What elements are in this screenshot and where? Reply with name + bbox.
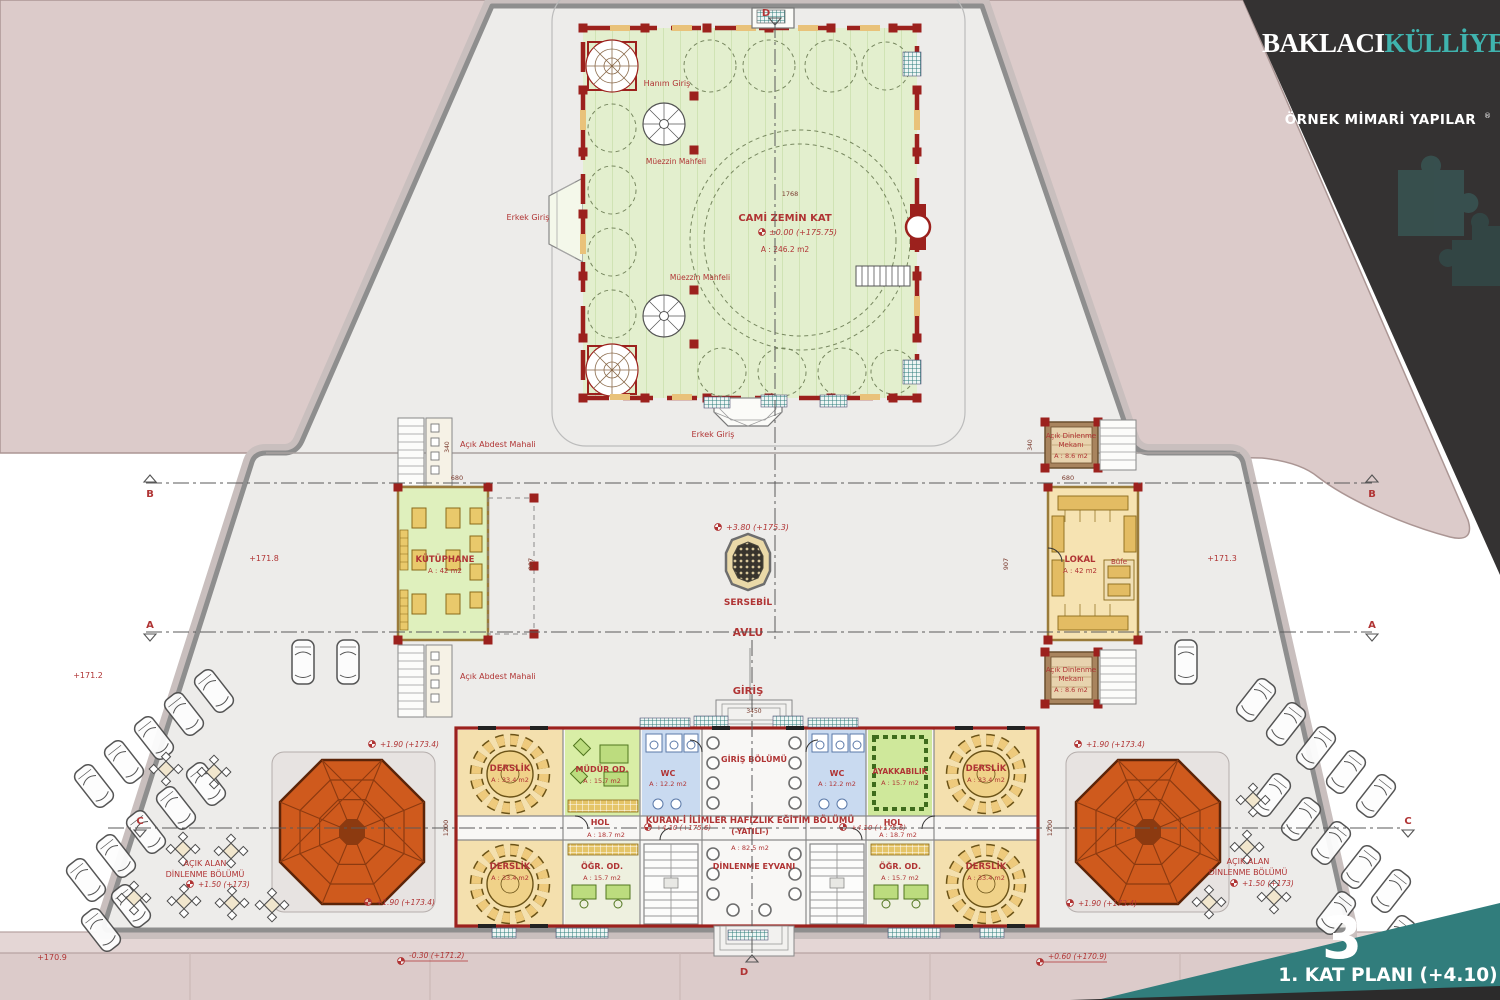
rest-upper-line2: Mekanı [1059, 441, 1084, 449]
muezzin-lower-label: Müezzin Mahfeli [670, 273, 730, 282]
section-marker-d-top: D [762, 8, 770, 19]
section-marker-c-right: C [1404, 816, 1411, 827]
minbar-stairs [856, 266, 910, 286]
mosque-area-label: A : 246.2 m2 [761, 245, 810, 254]
lokal-name-label: LOKAL [1065, 555, 1097, 565]
elevation-icon [759, 229, 766, 236]
section-marker-c-left: C [136, 816, 143, 827]
open-area-left-elev: +1.50 (+173) [198, 880, 250, 889]
library-name-label: KÜTÜPHANE [416, 554, 475, 565]
mudur-label: MÜDÜR OD. [575, 764, 628, 774]
derslik-bl-area: A : 33.4 m2 [491, 874, 529, 882]
education-building: DERSLİK A : 33.4 m2 DERSLİK A : 33.4 m2 … [442, 718, 1054, 956]
stairwell-left [644, 844, 698, 924]
brand-subtitle: ÖRNEK MİMARİ YAPILAR [1285, 110, 1477, 128]
derslik-tr-label: DERSLİK [966, 763, 1007, 774]
bufe-label: Büfe [1111, 558, 1127, 566]
sheet-number: 3 [1322, 904, 1362, 972]
open-area-right-line2: DİNLENME BÖLÜMÜ [1209, 867, 1288, 877]
terrace-elev-rt: +1.90 (+173.4) [1086, 740, 1145, 749]
mosque-name-label: CAMİ ZEMİN KAT [738, 210, 832, 224]
registered-mark: ® [1484, 112, 1491, 120]
hol-left-label: HOL [591, 818, 610, 827]
open-area-left-line1: AÇIK ALAN [184, 859, 227, 868]
gazebo-roof-left [280, 760, 424, 904]
hol-left-area: A : 18.7 m2 [587, 831, 625, 839]
rest-dim: 340 [1027, 439, 1034, 451]
ayakkabilik-area: A : 15.7 m2 [881, 779, 919, 787]
terrace-elev-lt: +1.90 (+173.4) [380, 740, 439, 749]
library-width-dim: 680 [451, 474, 463, 482]
wc-right-area: A : 12.2 m2 [818, 780, 856, 788]
derslik-bl-label: DERSLİK [490, 861, 531, 872]
section-marker-b-left: B [146, 489, 154, 500]
abdest-lower-label: Açık Abdest Mahali [460, 672, 536, 681]
elevation-icon [365, 899, 372, 906]
wc-left-label: WC [661, 769, 676, 778]
open-area-right-line1: AÇIK ALAN [1227, 857, 1270, 866]
rest-lower-area: A : 8.6 m2 [1054, 686, 1088, 694]
sersebil-elev-label: +3.80 (+175.3) [726, 523, 789, 532]
rest-area-upper [1041, 418, 1137, 473]
ogr-left-area: A : 15.7 m2 [583, 874, 621, 882]
erkek-giris-bottom-label: Erkek Giriş [692, 430, 735, 439]
education-area: A : 82.5 m2 [731, 844, 769, 852]
spot-elev-bc-right: +0.60 (+170.9) [1048, 952, 1107, 961]
sersebil-label: SERSEBİL [724, 597, 772, 608]
section-marker-d-bottom: D [740, 967, 748, 978]
minaret-dome-bottom [586, 344, 638, 396]
ogr-left-label: ÖĞR. OD. [581, 860, 623, 871]
spot-elev-left: +171.8 [249, 554, 279, 563]
car-icon [292, 640, 314, 684]
elevation-icon [1067, 900, 1074, 907]
sersebil-fountain [726, 534, 770, 590]
elevation-icon [840, 824, 847, 831]
elevation-icon [715, 524, 722, 531]
spiral-stair-lower [643, 295, 685, 337]
section-marker-a-left: A [146, 620, 154, 631]
derslik-tl-label: DERSLİK [490, 763, 531, 774]
south-steps [714, 926, 794, 956]
ogr-right-label: ÖĞR. OD. [879, 860, 921, 871]
elevation-icon [369, 741, 376, 748]
spot-elev-farleft: +171.2 [73, 671, 103, 680]
mudur-area: A : 15.7 m2 [583, 777, 621, 785]
entrance-dim: 3450 [746, 708, 761, 715]
car-icon [337, 640, 359, 684]
hol-right-area: A : 18.7 m2 [879, 831, 917, 839]
gazebo-roof-right [1076, 760, 1220, 904]
spiral-stair-upper [643, 103, 685, 145]
terrace-elev-lb: +1.90 (+173.4) [376, 898, 435, 907]
brand-title-primary: BAKLACI [1262, 28, 1385, 58]
section-marker-b-right: B [1368, 489, 1376, 500]
section-marker-a-right: A [1368, 620, 1376, 631]
lokal-area-label: A : 42 m2 [1063, 567, 1097, 575]
stairwell-right [810, 844, 864, 924]
lokal-width-dim: 680 [1062, 474, 1074, 482]
brand-title: BAKLACIKÜLLİYESİ [1262, 28, 1500, 58]
hanim-giris-label: Hanım Giriş [644, 79, 691, 88]
spot-elev-bc-left: -0.30 (+171.2) [409, 951, 464, 960]
library-height-dim: 907 [527, 558, 535, 570]
abdest-dim: 340 [444, 441, 451, 453]
site-plan-sheet: 1768 CAMİ ZEMİN KAT ±0.00 (+175.75) A : … [0, 0, 1500, 1000]
brand-title-secondary: KÜLLİYESİ [1385, 28, 1500, 58]
mosque-elev-label: ±0.00 (+175.75) [769, 228, 837, 237]
rest-upper-line1: Açık Dinlenme [1046, 432, 1096, 440]
elevation-icon [1075, 741, 1082, 748]
rest-lower-line1: Açık Dinlenme [1046, 666, 1096, 674]
avlu-label: AVLU [733, 627, 763, 639]
giris-label: GİRİŞ [733, 683, 764, 697]
elevation-icon [1231, 880, 1238, 887]
lokal-height-dim: 907 [1002, 558, 1010, 570]
library-area-label: A : 42 m2 [428, 567, 462, 575]
derslik-tl-area: A : 33.4 m2 [491, 776, 529, 784]
wc-left-area: A : 12.2 m2 [649, 780, 687, 788]
dinlenme-eyvani-label: DİNLENME EYVANI [713, 861, 796, 871]
elevation-icon [645, 824, 652, 831]
rest-upper-area: A : 8.6 m2 [1054, 452, 1088, 460]
mosque-width-dim: 1768 [782, 190, 799, 198]
erkek-giris-left-label: Erkek Giriş [507, 213, 550, 222]
open-area-right-elev: +1.50 (+173) [1242, 879, 1294, 888]
sheet-title: 1. KAT PLANI (+4.10) [1278, 965, 1497, 986]
giris-bolumu-label: GİRİŞ BÖLÜMÜ [721, 754, 787, 764]
derslik-tr-area: A : 33.4 m2 [967, 776, 1005, 784]
ogr-right-area: A : 15.7 m2 [881, 874, 919, 882]
rest-lower-line2: Mekanı [1059, 675, 1084, 683]
terrace-elev-rb: +1.90 (+173.4) [1078, 899, 1137, 908]
elevation-icon [187, 881, 194, 888]
open-area-left-line2: DİNLENME BÖLÜMÜ [166, 869, 245, 879]
derslik-br-area: A : 33.4 m2 [967, 874, 1005, 882]
rest-area-lower [1041, 648, 1137, 709]
car-icon [1175, 640, 1197, 684]
abdest-upper-label: Açık Abdest Mahali [460, 440, 536, 449]
spot-elev-right: +171.3 [1207, 554, 1237, 563]
wc-right-label: WC [830, 769, 845, 778]
ayakkabilik-label: AYAKKABILIK [873, 767, 929, 776]
muezzin-upper-label: Müezzin Mahfeli [646, 157, 706, 166]
minaret-dome-top [586, 40, 638, 92]
derslik-br-label: DERSLİK [966, 861, 1007, 872]
spot-elev-bottomleft: +170.9 [37, 953, 67, 962]
